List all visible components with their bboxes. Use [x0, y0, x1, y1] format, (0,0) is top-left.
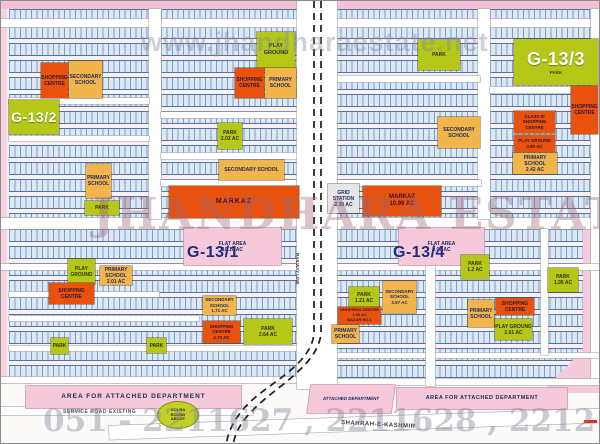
road-sw-3	[9, 316, 199, 321]
road-nw-2	[9, 136, 149, 141]
block-play-ground-g4: PLAY GROUND 2.61 AC	[495, 319, 532, 340]
block-shopping-centre-g1: SHOPPING CENTRE	[49, 283, 94, 304]
golra-roundabout: GOLRA ROUND ABOUT	[158, 402, 198, 428]
block-class3-shopping-centre-g3: CLASS III SHOPPING CENTRE	[514, 111, 555, 133]
block-primary-school-g3: PRIMARY SCHOOL 2.42 AC	[513, 153, 557, 174]
block-primary-school-g4a: PRIMARY SCHOOL	[332, 325, 359, 343]
block-secondary-school-g2-top: SECONDARY SCHOOL	[69, 61, 102, 98]
block-primary-school-g1: PRIMARY SCHOOL 2.01 AC	[100, 266, 132, 285]
block-park-g1-small2: PARK	[147, 338, 166, 353]
block-play-ground-g3: PLAY GROUND 4.80 AC	[514, 135, 555, 152]
strip-attached-dept-right: AREA FOR ATTACHED DEPARTMENT	[397, 388, 567, 409]
sector-label-g13-2: G-13/2	[11, 109, 57, 126]
block-shopping-centre-g1b: SHOPPING CENTRE 2.73 AC	[203, 321, 240, 343]
strip-attached-dept-mid: ATTACHED DEPARTMENT	[307, 385, 395, 413]
g13-sector-plan-map: SHOPPING CENTRE SECONDARY SCHOOL PRIMARY…	[0, 0, 600, 444]
road-se-2	[335, 353, 600, 358]
block-markaz-east: MARKAZ 10.96 AC	[363, 186, 441, 216]
sector-label-g13-1: G-13/1	[187, 244, 239, 262]
sector-block-g13-3: G-13/3 PARK	[514, 39, 598, 85]
road-nw-3	[161, 112, 299, 118]
block-shopping-centre-g4a: SHOPPING CENTRE 1.30 AC BAZAR NO.1	[338, 307, 381, 324]
block-park-g2-left: PARK	[85, 201, 119, 215]
sector-label-g13-4: G-13/4	[393, 244, 445, 262]
block-primary-school-g2-mid: PRIMARY SCHOOL	[265, 68, 296, 98]
block-shopping-centre-g2-mid: SHOPPING CENTRE	[235, 68, 264, 98]
railway-line-label: RAILWAY LINE	[295, 253, 300, 285]
block-markaz-west: MARKAZ	[169, 186, 299, 218]
block-park-g3: PARK	[418, 40, 460, 70]
block-secondary-school-g2-big: SECONDARY SCHOOL	[219, 160, 284, 180]
block-shopping-centre-g3-edge: SHOPPING CENTRE	[571, 86, 598, 134]
left-edge-strip	[1, 9, 7, 384]
block-park-g4c: PARK 1.21 AC	[349, 287, 379, 309]
block-park-g2-mid: PARK 2.02 AC	[218, 123, 242, 149]
sector-sublabel-g13-3: PARK	[550, 70, 562, 75]
block-play-ground-g1: PLAY GROUND	[68, 259, 95, 284]
road-vertical-nw	[149, 9, 161, 219]
block-park-g1-small1: PARK	[51, 338, 68, 354]
red-marker-dash	[584, 420, 597, 423]
block-park-g1: PARK 2.64 AC	[244, 319, 292, 344]
road-ne-1	[335, 76, 480, 82]
block-secondary-school-g1: SECONDARY SCHOOL 1.71 AC	[203, 296, 236, 315]
road-vertical-ne	[478, 9, 490, 219]
block-play-ground-g2: PLAY GROUND	[257, 32, 295, 68]
service-road-label: SERVICE ROAD EXISTING	[63, 409, 136, 415]
road-sw-5	[1, 377, 311, 383]
sector-block-g13-2: G-13/2	[9, 100, 59, 134]
road-vertical-se2	[541, 229, 548, 355]
block-shopping-centre-g4b: SHOPPING CENTRE	[496, 298, 534, 315]
block-primary-school-g2: PRIMARY SCHOOL	[86, 164, 111, 198]
block-secondary-school-g3: SECONDARY SCHOOL	[438, 117, 480, 148]
block-shopping-centre-g2-top: SHOPPING CENTRE	[41, 63, 68, 98]
road-nw-4	[161, 153, 299, 159]
block-park-g4a: PARK 1.2 AC	[461, 255, 489, 279]
block-park-g4b: PARK 1.95 AC	[548, 268, 578, 292]
strip-attached-dept-left: AREA FOR ATTACHED DEPARTMENT	[26, 386, 241, 408]
block-primary-school-g4b: PRIMARY SCHOOL	[468, 300, 494, 327]
block-grid-station: GRID STATION 2.30 AC	[328, 184, 359, 213]
block-secondary-school-g4: SECONDARY SCHOOL 3.97 AC	[383, 281, 416, 313]
sector-label-g13-3: G-13/3	[527, 49, 585, 71]
